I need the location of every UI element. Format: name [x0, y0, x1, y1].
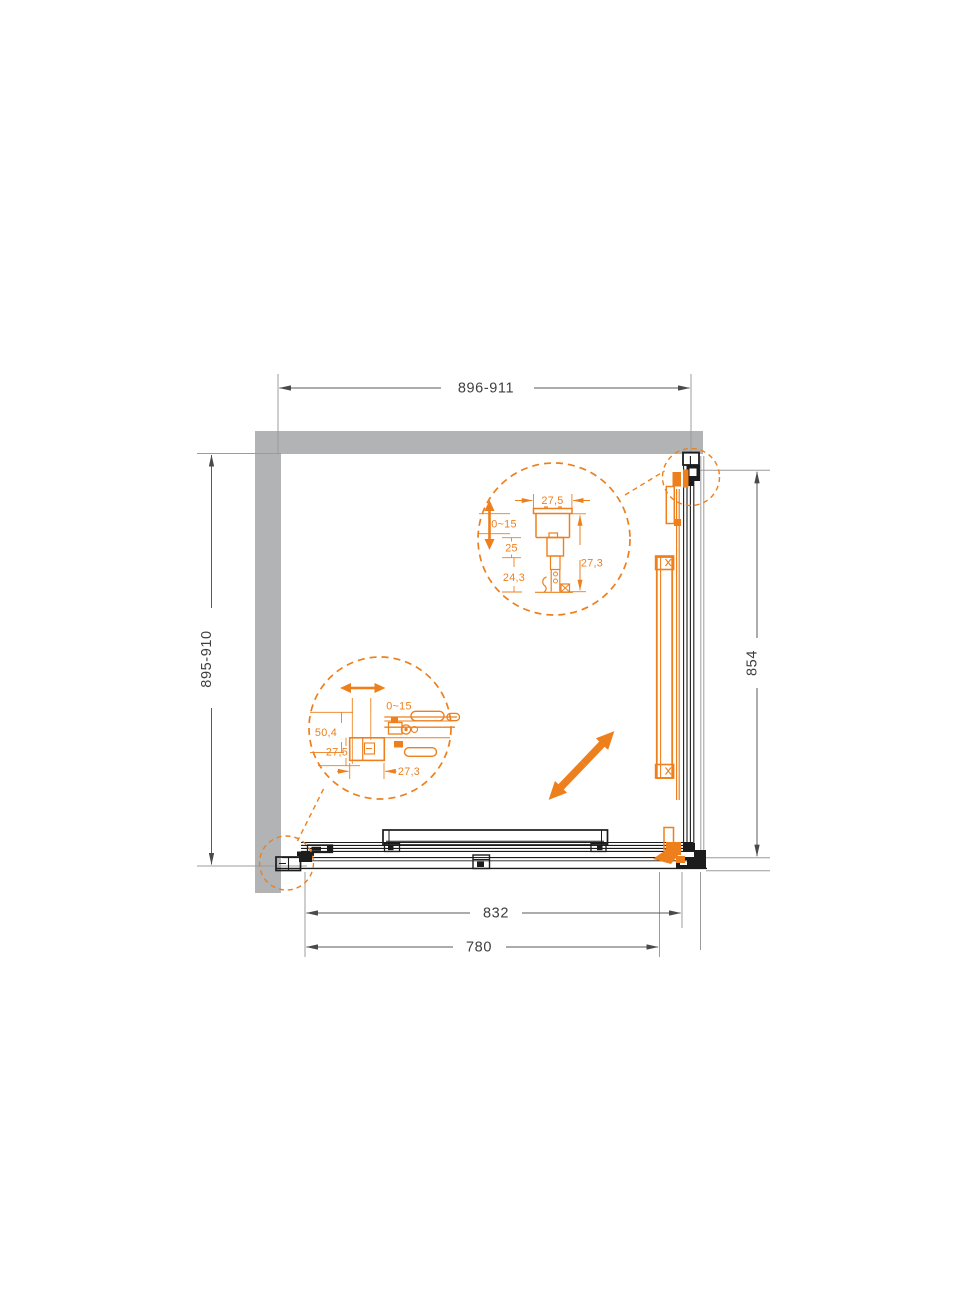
slide-direction-arrow [559, 742, 604, 789]
detail-top-profile: 27,5 0~15 25 24,3 27,3 [479, 494, 603, 592]
dimension-right: 854 [745, 472, 761, 856]
dimension-bottom-inner: 780 [306, 940, 658, 956]
detail-top-travel-label: 0~15 [491, 519, 517, 531]
detail-top-lower-label: 24,3 [503, 572, 525, 584]
roller-carriage-top [666, 470, 688, 527]
leader-line-bottom [298, 789, 324, 841]
wall-left [255, 431, 281, 893]
detail-top-width-label: 27,5 [541, 495, 563, 507]
dimension-right-label: 854 [745, 650, 761, 676]
detail-bottom-height-label: 50,4 [315, 727, 337, 739]
dimension-left-label: 895-910 [199, 630, 215, 687]
detail-bottom-travel-label: 0~15 [386, 701, 412, 713]
dimension-bottom-outer: 832 [306, 906, 680, 922]
dimension-left: 895-910 [199, 455, 215, 865]
sliding-door-bottom [276, 830, 707, 871]
technical-drawing: 896-911 895-910 854 832 780 [0, 0, 975, 1300]
dimension-bottom-inner-label: 780 [466, 940, 492, 956]
detail-bottom-block-label: 27,5 [326, 747, 348, 759]
dimension-bottom-outer-label: 832 [483, 906, 509, 922]
leader-line-top [625, 471, 665, 495]
wall-profile-top-right [683, 453, 699, 466]
corner-profile-bottom-right [683, 843, 695, 852]
detail-bottom-profile: 0~15 50,4 27,5 27,3 [310, 688, 460, 779]
side-panel-right [676, 453, 706, 869]
orange-door-panel [657, 557, 672, 778]
dimension-top-label: 896-911 [458, 381, 514, 397]
drawing-canvas: 896-911 895-910 854 832 780 [0, 0, 975, 1300]
detail-top-upper-label: 25 [505, 543, 518, 555]
wall-top [255, 431, 703, 454]
detail-top-depth-label: 27,3 [581, 558, 603, 570]
walls [255, 431, 703, 893]
dimension-top: 896-911 [279, 381, 689, 397]
detail-bottom-width-label: 27,3 [398, 766, 420, 778]
